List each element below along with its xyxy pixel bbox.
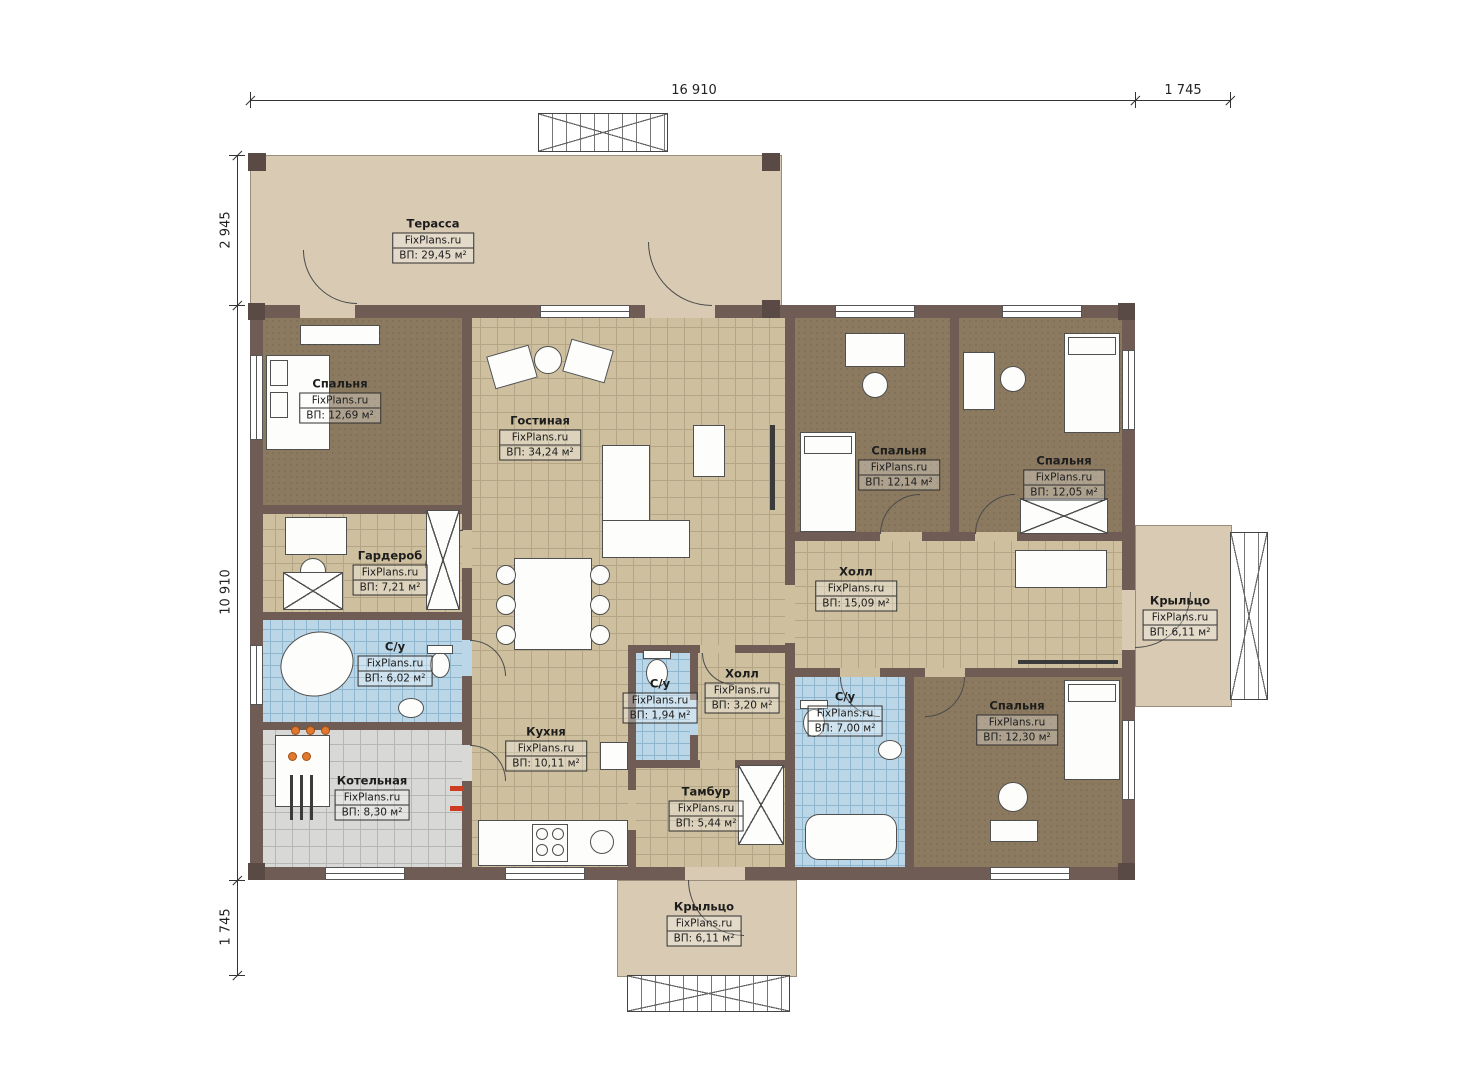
dim-label-top-right: 1 745 (1164, 83, 1201, 98)
dim-line-left (237, 155, 238, 975)
wall-bathright-bedroom (905, 677, 914, 867)
room-label-tambour: Тамбур FixPlans.ruВП: 5,44 м² (669, 785, 744, 832)
burner-icon (552, 828, 564, 840)
room-label-bedroom-t2: Спальня FixPlans.ruВП: 12,05 м² (1023, 454, 1105, 501)
dining-chair-icon (496, 565, 516, 585)
window (1122, 350, 1135, 430)
window (1122, 720, 1135, 800)
coffee-table-icon (534, 346, 562, 374)
chair-icon (998, 782, 1028, 812)
door-gap-tambour-kitchen (628, 790, 636, 830)
dining-chair-icon (590, 595, 610, 615)
wardrobe-cabinet-icon (426, 510, 460, 610)
pipe-icon (300, 775, 303, 820)
terrace-post (762, 153, 780, 171)
window (250, 645, 263, 705)
door-gap-bedroom-br (925, 668, 965, 677)
window (325, 867, 405, 880)
corner-post (248, 303, 265, 320)
window (990, 867, 1070, 880)
wardrobe-cabinet-icon (738, 765, 784, 845)
sink-icon (878, 740, 902, 760)
door-gap-hall-small (700, 645, 735, 653)
corner-post (1118, 863, 1135, 880)
room-label-terrace: Терасса FixPlans.ruВП: 29,45 м² (392, 217, 474, 264)
pipe-icon (310, 775, 313, 820)
room-label-porch-right: Крыльцо FixPlans.ruВП: 6,11 м² (1143, 594, 1218, 641)
dresser-icon (300, 325, 380, 345)
room-label-hall-small: Холл FixPlans.ruВП: 3,20 м² (705, 667, 780, 714)
burner-icon (536, 828, 548, 840)
window (505, 867, 585, 880)
fridge-icon (600, 742, 628, 770)
window (250, 355, 263, 440)
window (540, 305, 630, 318)
desk-icon (285, 517, 347, 555)
dining-chair-icon (590, 625, 610, 645)
room-label-wardrobe: Гардероб FixPlans.ruВП: 7,21 м² (353, 549, 428, 596)
door-gap-porch-right (1122, 590, 1135, 650)
wall-wardrobe-bath (263, 612, 462, 620)
room-label-bedroom-tl: Спальня FixPlans.ruВП: 12,69 м² (299, 377, 381, 424)
door-gap-wardrobe (462, 530, 472, 568)
sink-icon (398, 698, 424, 718)
dim-label-top-main: 16 910 (671, 83, 717, 98)
wall-between-top-bedrooms (950, 318, 959, 532)
sofa-icon (602, 520, 690, 558)
toilet-icon (430, 652, 450, 678)
kitchen-sink-icon (590, 830, 614, 854)
room-label-bedroom-t1: Спальня FixPlans.ruВП: 12,14 м² (858, 444, 940, 491)
dim-label-left-bottom: 1 745 (219, 908, 234, 945)
wall-left-wing (462, 318, 472, 867)
door-gap-porch-bottom (685, 867, 745, 880)
chair-icon (862, 372, 888, 398)
pillow-icon (270, 360, 288, 386)
floor-plan: Терасса FixPlans.ruВП: 29,45 м² Спальня … (0, 0, 1473, 1080)
toilet-tank-icon (643, 650, 671, 659)
heater-dot-icon (321, 726, 330, 735)
room-label-living: Гостиная FixPlans.ruВП: 34,24 м² (499, 414, 581, 461)
room-label-boiler: Котельная FixPlans.ruВП: 8,30 м² (335, 774, 410, 821)
dining-chair-icon (496, 595, 516, 615)
doormat-icon (1018, 660, 1118, 664)
console-cabinet-icon (1015, 550, 1107, 588)
opening-living-hall (785, 585, 795, 643)
corner-post (1118, 303, 1135, 320)
dining-chair-icon (590, 565, 610, 585)
radiator-valve-icon (450, 786, 464, 791)
terrace-post (248, 153, 266, 171)
pipe-icon (290, 775, 293, 820)
heater-dot-icon (291, 726, 300, 735)
chair-icon (1000, 366, 1026, 392)
dim-label-left-top: 2 945 (219, 211, 234, 248)
room-label-bath-left: С/у FixPlans.ruВП: 6,02 м² (358, 640, 433, 687)
room-label-hall-main: Холл FixPlans.ruВП: 15,09 м² (815, 565, 897, 612)
door-gap-terrace (645, 305, 715, 318)
pillow-icon (1068, 337, 1116, 355)
wardrobe-cabinet-icon (283, 572, 343, 610)
dresser-icon (990, 820, 1038, 842)
stairs-bottom (627, 975, 790, 1012)
room-label-bath-center: С/у FixPlans.ruВП: 1,94 м² (623, 677, 698, 724)
desk-icon (845, 333, 905, 367)
dining-chair-icon (496, 625, 516, 645)
burner-icon (552, 844, 564, 856)
door-gap-tambour-hall (700, 760, 735, 768)
burner-dot-icon (288, 752, 297, 761)
heater-dot-icon (306, 726, 315, 735)
terrace-post (762, 300, 780, 318)
desk-icon (963, 352, 995, 410)
window (835, 305, 915, 318)
tv-icon (770, 425, 775, 510)
door-gap-bath-right (840, 668, 880, 677)
corner-post (248, 863, 265, 880)
radiator-valve-icon (450, 806, 464, 811)
dining-table-icon (514, 558, 592, 650)
room-label-kitchen: Кухня FixPlans.ruВП: 10,11 м² (505, 725, 587, 772)
stairs-right (1230, 532, 1268, 700)
room-label-bedroom-br: Спальня FixPlans.ruВП: 12,30 м² (976, 699, 1058, 746)
side-table-icon (693, 425, 725, 477)
room-label-porch-bottom: Крыльцо FixPlans.ruВП: 6,11 м² (667, 900, 742, 947)
pillow-icon (804, 436, 852, 454)
burner-icon (536, 844, 548, 856)
pillow-icon (270, 392, 288, 418)
burner-dot-icon (302, 752, 311, 761)
roof-dormer (538, 113, 668, 152)
dim-label-left-main: 10 910 (219, 569, 234, 615)
door-gap-bedroom-terrace (300, 305, 355, 318)
pillow-icon (1068, 684, 1116, 702)
wardrobe-cabinet-icon (1020, 498, 1108, 534)
bathtub-icon (805, 814, 897, 860)
window (1002, 305, 1082, 318)
room-label-bath-right: С/у FixPlans.ruВП: 7,00 м² (808, 690, 883, 737)
dim-line-top (250, 100, 1230, 101)
